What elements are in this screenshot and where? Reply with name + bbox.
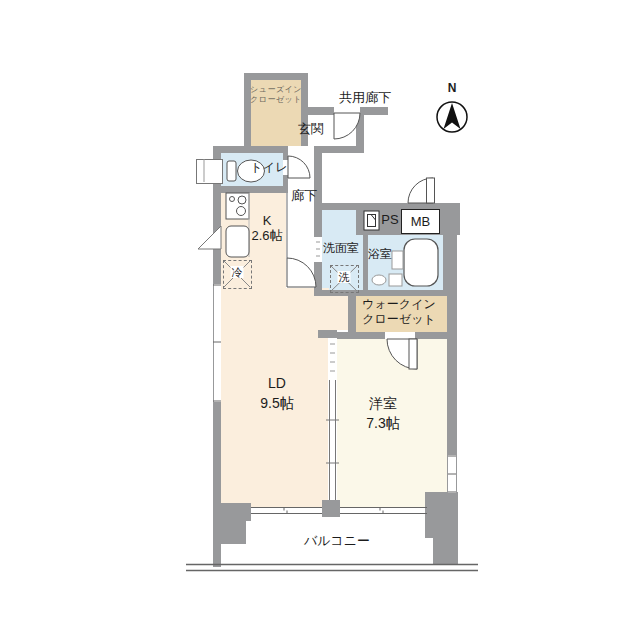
western-room-size-label: 7.3帖 <box>366 416 399 431</box>
meter-box: MB <box>401 209 440 234</box>
washroom-label: 洗面室 <box>323 242 359 255</box>
entrance-label: 玄関 <box>298 122 324 136</box>
floor-plan: MB 共用廊下 N シューズイン クローゼット 玄関 トイレ 廊下 K 2.6帖… <box>0 0 640 640</box>
living-dining-size-label: 9.5帖 <box>260 396 293 411</box>
shoes-closet-label-2: クローゼット <box>250 96 302 105</box>
common-corridor-label: 共用廊下 <box>339 91 391 105</box>
living-door-swing-icon <box>287 258 316 287</box>
entrance-door-swing-icon <box>334 113 360 139</box>
stove-burners-icon <box>226 193 249 219</box>
walk-in-closet-label-1: ウォークイン <box>362 298 435 311</box>
bathroom-label: 浴室 <box>368 248 392 261</box>
living-dining-label: LD <box>268 376 286 391</box>
toilet-label: トイレ <box>251 161 288 174</box>
walk-in-closet-label-2: クローゼット <box>362 313 435 326</box>
western-room-label: 洋室 <box>369 396 397 411</box>
casement-window-icon <box>198 226 221 249</box>
partition-hatch-dashes <box>330 344 335 371</box>
toilet-door-swing-icon <box>288 156 310 178</box>
hallway-label: 廊下 <box>291 189 317 203</box>
washroom-door-ticks <box>316 242 320 256</box>
shoes-closet-label-1: シューズイン <box>250 86 302 95</box>
north-arrow-icon <box>437 102 467 132</box>
kitchen-label: K <box>263 214 272 228</box>
kitchen-sink-icon <box>226 226 249 257</box>
closet-door-swing-icon <box>387 339 417 369</box>
refrigerator-label: 冷 <box>231 266 244 278</box>
bathtub-icon <box>404 239 438 286</box>
meter-box-label: MB <box>411 214 431 229</box>
balcony-edge-lines <box>186 565 478 571</box>
balcony-label: バルコニー <box>304 534 370 548</box>
pipe-space-icon <box>364 211 379 230</box>
meter-box-door-swing-icon <box>408 178 435 203</box>
north-label: N <box>448 82 457 95</box>
washing-machine-label: 洗 <box>338 271 351 283</box>
window-mullion <box>322 500 340 517</box>
pipe-space-label: PS <box>381 213 398 227</box>
kitchen-size-label: 2.6帖 <box>251 229 282 243</box>
sliding-partition <box>326 380 339 507</box>
